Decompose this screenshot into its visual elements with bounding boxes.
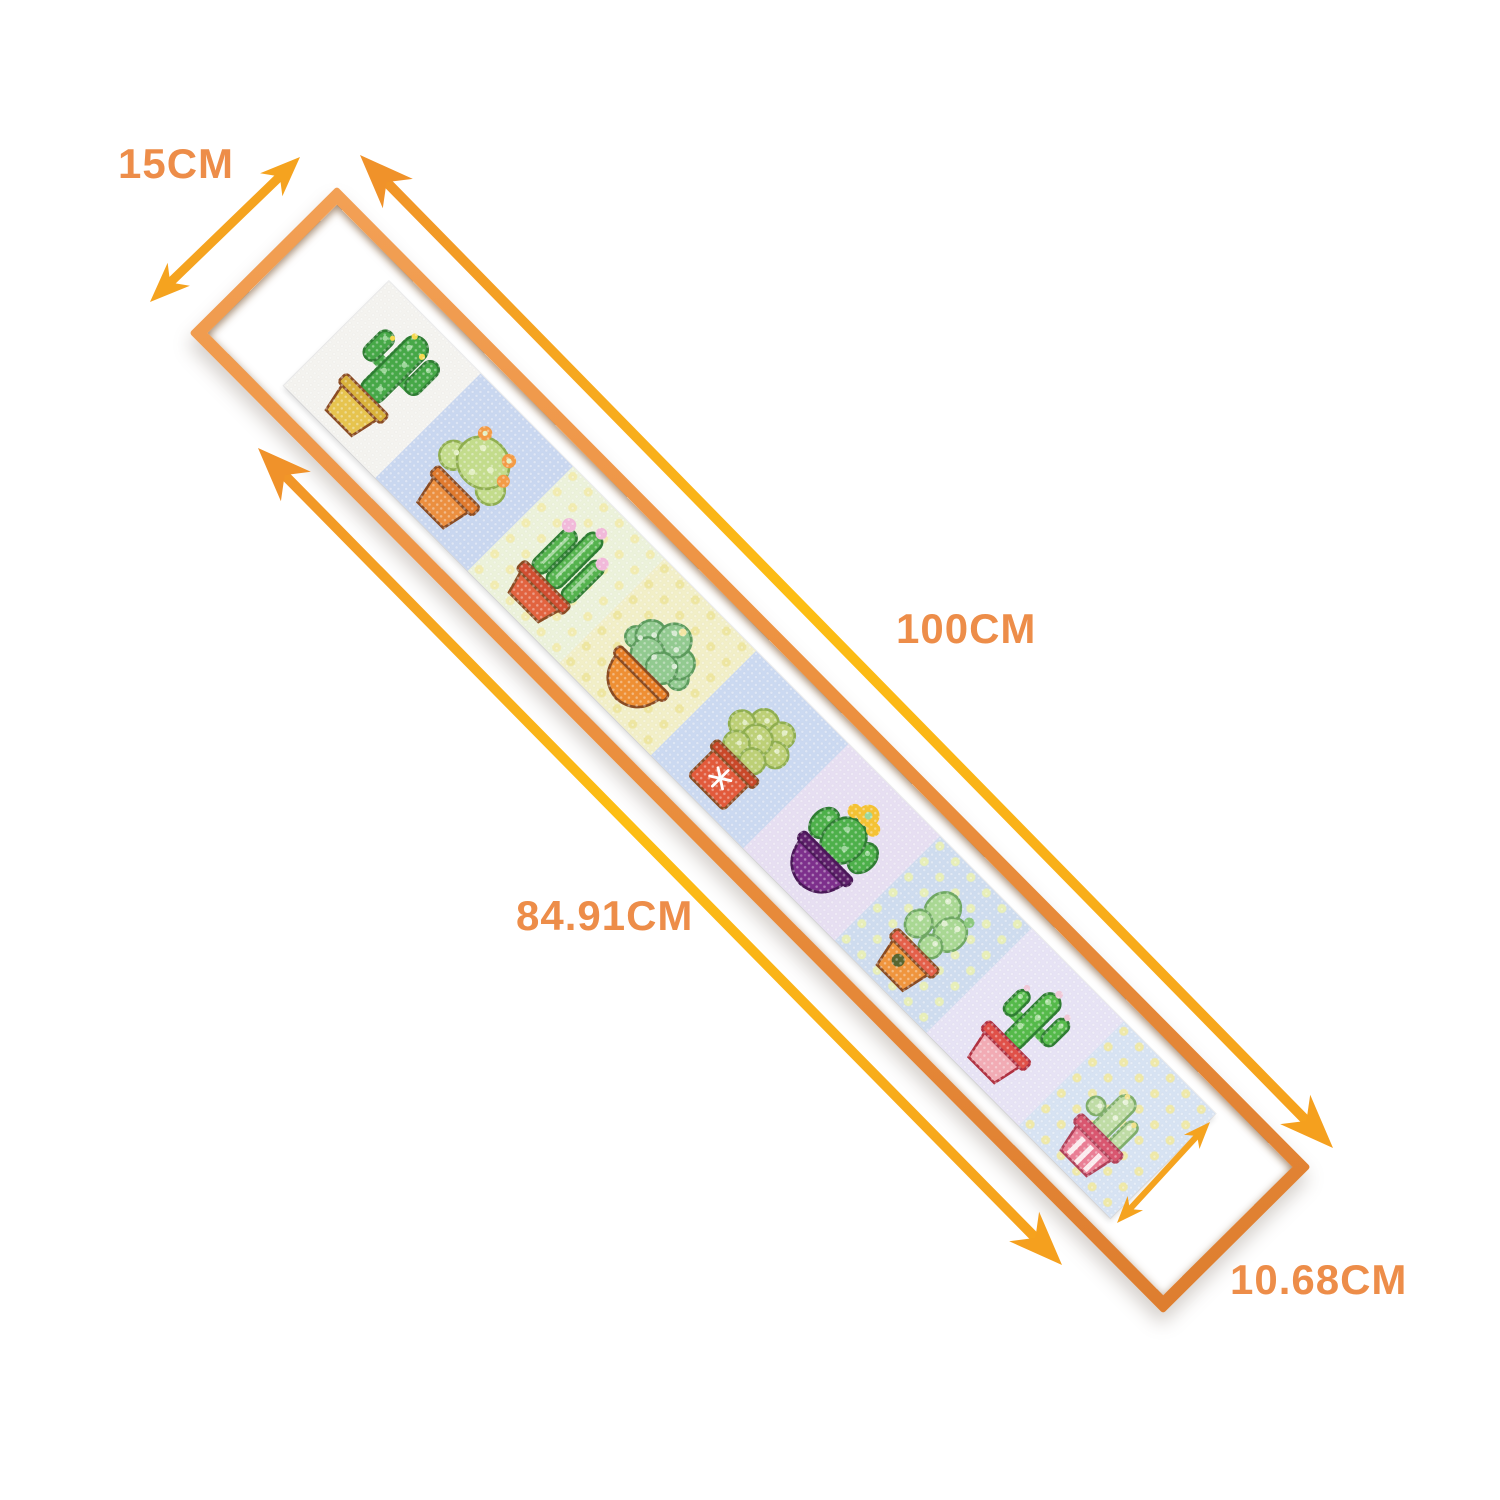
frame-mat xyxy=(208,205,1293,1295)
art-strip xyxy=(284,281,1216,1218)
art-length-label: 84.91CM xyxy=(516,892,693,940)
picture-frame xyxy=(189,186,1310,1313)
frame-width-label: 15CM xyxy=(118,140,234,188)
frame-length-label: 100CM xyxy=(896,605,1036,653)
product-dimension-diagram: 15CM 100CM 84.91CM 10.68CM xyxy=(0,0,1500,1500)
art-width-label: 10.68CM xyxy=(1230,1256,1407,1304)
frame-length-arrow xyxy=(345,140,1348,1162)
